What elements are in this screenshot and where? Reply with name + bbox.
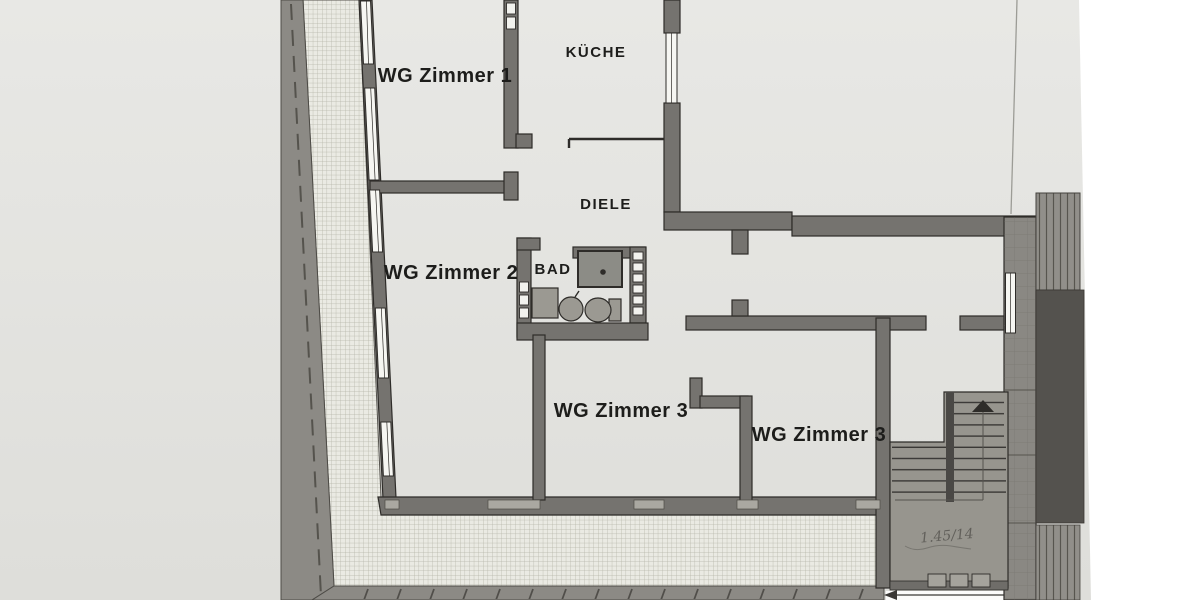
scanned-floor-plan: 1.45/14 WG Zimmer 1 KÜCHE DIELE WG Zimme… (0, 0, 1200, 600)
room-label-wg-zimmer-3-right: WG Zimmer 3 (752, 424, 886, 446)
exterior-wall-bottom (378, 497, 884, 515)
dark-building-block (1036, 290, 1084, 523)
room-label-wg-zimmer-2: WG Zimmer 2 (384, 262, 518, 284)
wall-zimmer1-zimmer2 (370, 181, 516, 193)
washbasin-icon (559, 297, 583, 321)
room-label-bad: BAD (535, 261, 572, 278)
toilet-icon (585, 298, 611, 322)
washing-machine-icon (532, 288, 558, 318)
room-label-kueche: KÜCHE (566, 44, 627, 61)
stair-bottom-doors (928, 574, 990, 587)
room-label-diele: DIELE (580, 196, 632, 213)
shower-icon (578, 251, 622, 287)
wall-bad-top-left (517, 238, 540, 250)
wall-foot (516, 134, 532, 148)
shower-drain-icon (600, 269, 606, 275)
wall-stub-down (732, 230, 748, 254)
edge-tick-marks (340, 586, 880, 599)
bottom-arrow-line (884, 590, 1008, 600)
room-label-wg-zimmer-1: WG Zimmer 1 (378, 65, 512, 87)
wall-diele-north-right (792, 216, 1036, 236)
wall-stub-up (732, 300, 748, 316)
striped-roof-band-bottom (1036, 525, 1080, 600)
stair-spine-wall (946, 392, 954, 502)
wall-t-stub (504, 172, 518, 200)
striped-roof-band-top (1036, 193, 1080, 290)
wall-diele-north-left (664, 212, 792, 230)
wall-zigzag-c (740, 396, 752, 502)
floor-plan-drawing: 1.45/14 WG Zimmer 1 KÜCHE DIELE WG Zimme… (0, 0, 1200, 600)
wall-kueche-right-lower (664, 103, 680, 212)
room-label-wg-zimmer-3-left: WG Zimmer 3 (554, 400, 688, 422)
wall-kueche-right-upper (664, 0, 680, 33)
wall-corridor-seg (960, 316, 1004, 330)
wall-stairwell-west (876, 318, 890, 588)
stair-steps-upper (954, 392, 1004, 442)
wall-zimmer2-zimmer3 (533, 335, 545, 500)
